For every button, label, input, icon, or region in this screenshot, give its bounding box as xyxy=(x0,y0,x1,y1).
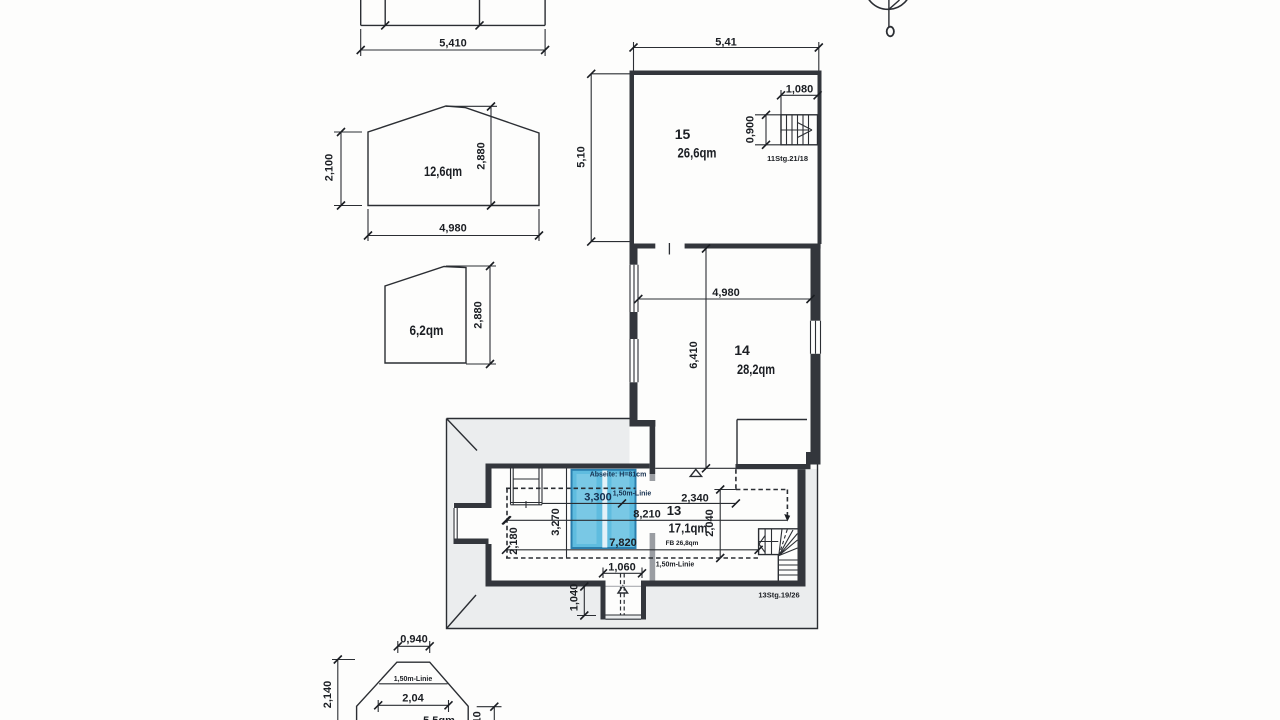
svg-text:2,10: 2,10 xyxy=(472,711,484,720)
svg-text:4,980: 4,980 xyxy=(712,287,740,299)
svg-text:13Stg.19/26: 13Stg.19/26 xyxy=(758,591,799,600)
svg-text:1,50m-Linie: 1,50m-Linie xyxy=(613,491,652,498)
svg-text:1,50m-Linie: 1,50m-Linie xyxy=(394,676,433,683)
svg-text:2,04: 2,04 xyxy=(402,693,424,705)
svg-text:1,060: 1,060 xyxy=(608,562,636,574)
svg-text:5,41: 5,41 xyxy=(715,37,736,49)
svg-text:0,900: 0,900 xyxy=(745,116,757,144)
svg-text:3,270: 3,270 xyxy=(550,508,562,536)
svg-text:2,880: 2,880 xyxy=(476,142,488,170)
svg-text:8,210: 8,210 xyxy=(633,509,661,521)
svg-text:2,340: 2,340 xyxy=(681,493,709,505)
svg-text:3,300: 3,300 xyxy=(584,492,612,504)
svg-text:15: 15 xyxy=(675,126,691,142)
svg-text:2,140: 2,140 xyxy=(322,681,334,709)
svg-text:6,410: 6,410 xyxy=(688,341,700,369)
svg-text:2,100: 2,100 xyxy=(324,154,336,182)
svg-text:Abseite: H=81cm: Abseite: H=81cm xyxy=(590,472,647,479)
svg-text:11Stg.21/18: 11Stg.21/18 xyxy=(767,154,808,163)
svg-text:1,080: 1,080 xyxy=(786,84,814,96)
svg-text:2,040: 2,040 xyxy=(704,509,716,537)
svg-text:6,2qm: 6,2qm xyxy=(410,322,444,338)
svg-text:13: 13 xyxy=(667,503,681,518)
svg-text:12,6qm: 12,6qm xyxy=(424,163,462,179)
svg-text:17,1qm: 17,1qm xyxy=(669,521,708,536)
svg-text:14: 14 xyxy=(734,342,750,358)
svg-text:4,980: 4,980 xyxy=(439,223,467,235)
svg-text:5,10: 5,10 xyxy=(576,146,588,167)
svg-text:FB 26,8qm: FB 26,8qm xyxy=(666,540,699,547)
svg-text:7,820: 7,820 xyxy=(609,537,637,549)
svg-text:2,180: 2,180 xyxy=(508,527,520,555)
svg-text:1,50m-Linie: 1,50m-Linie xyxy=(656,562,695,569)
svg-text:26,6qm: 26,6qm xyxy=(678,145,717,161)
svg-text:28,2qm: 28,2qm xyxy=(737,361,775,377)
svg-text:2,880: 2,880 xyxy=(473,301,485,329)
svg-text:0,940: 0,940 xyxy=(400,634,428,646)
svg-text:5,5qm: 5,5qm xyxy=(423,715,455,720)
svg-text:5,410: 5,410 xyxy=(439,38,467,50)
svg-text:1,040: 1,040 xyxy=(569,584,581,612)
